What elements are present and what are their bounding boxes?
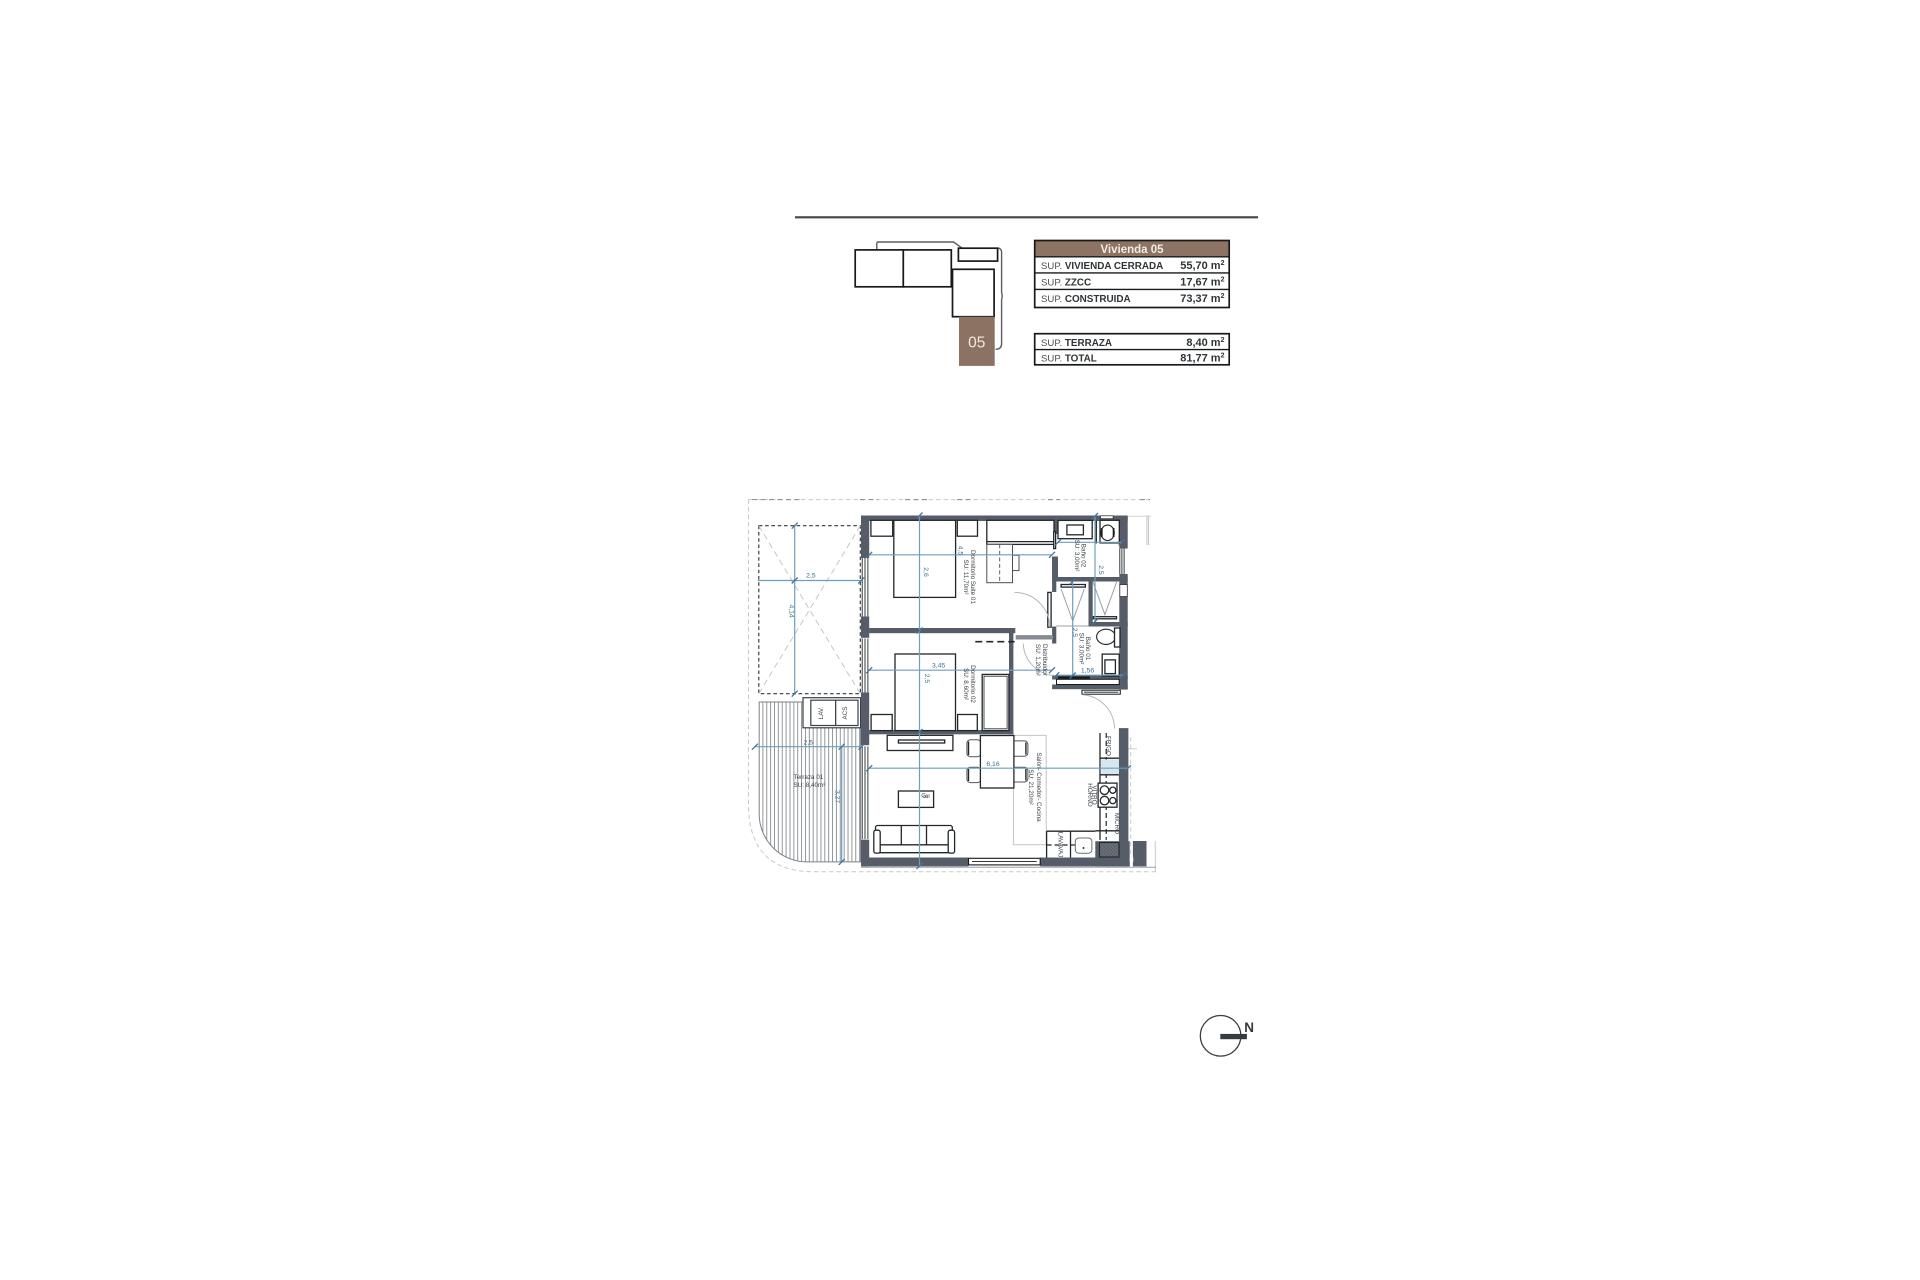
- svg-text:17,67 m2: 17,67 m2: [1180, 276, 1224, 288]
- svg-text:SU: 3,00m²: SU: 3,00m²: [1078, 633, 1085, 665]
- svg-text:81,77 m2: 81,77 m2: [1180, 352, 1224, 364]
- svg-text:SUP. ZZCC: SUP. ZZCC: [1041, 277, 1091, 288]
- svg-text:SUP. CONSTRUIDA: SUP. CONSTRUIDA: [1041, 294, 1131, 305]
- svg-text:SU: 8,40m²: SU: 8,40m²: [794, 782, 826, 789]
- svg-text:6,16: 6,16: [986, 761, 999, 768]
- svg-text:3,27: 3,27: [834, 790, 841, 803]
- svg-text:2,5: 2,5: [803, 740, 813, 747]
- svg-text:SU: 1,20m²: SU: 1,20m²: [1034, 644, 1041, 676]
- svg-text:3,45: 3,45: [932, 662, 945, 669]
- svg-text:LAVAVAJ: LAVAVAJ: [1057, 832, 1064, 858]
- svg-text:FRIGO: FRIGO: [1104, 736, 1111, 756]
- svg-text:SU: 11,70m²: SU: 11,70m²: [962, 560, 969, 595]
- svg-text:Gu: Gu: [921, 793, 930, 800]
- svg-text:8,40 m2: 8,40 m2: [1186, 337, 1224, 349]
- svg-text:2,5: 2,5: [923, 674, 930, 684]
- svg-text:Terraza 01: Terraza 01: [794, 774, 824, 781]
- svg-text:05: 05: [968, 335, 985, 352]
- svg-text:SUP. VIVIENDA CERRADA: SUP. VIVIENDA CERRADA: [1041, 261, 1163, 272]
- svg-text:Distribuidor: Distribuidor: [1041, 644, 1048, 676]
- svg-text:SU: 8,60m²: SU: 8,60m²: [962, 668, 969, 700]
- svg-text:LAV.: LAV.: [818, 706, 825, 719]
- svg-text:N: N: [1244, 1020, 1254, 1035]
- svg-text:55,70 m2: 55,70 m2: [1180, 260, 1224, 272]
- svg-text:4,14: 4,14: [787, 604, 794, 617]
- svg-text:2,5: 2,5: [1097, 565, 1104, 575]
- svg-text:MICRO: MICRO: [1113, 813, 1120, 834]
- svg-text:2,5: 2,5: [806, 573, 816, 580]
- svg-text:HORNO: HORNO: [1086, 783, 1093, 807]
- svg-text:73,37 m2: 73,37 m2: [1180, 293, 1224, 305]
- svg-text:Vivienda 05: Vivienda 05: [1100, 244, 1164, 256]
- svg-text:2,5: 2,5: [1071, 628, 1078, 638]
- svg-text:4,5: 4,5: [956, 546, 963, 556]
- svg-text:SU: 3,00m²: SU: 3,00m²: [1073, 540, 1080, 572]
- svg-text:SU: 21,20m²: SU: 21,20m²: [1027, 769, 1034, 804]
- svg-text:SUP. TOTAL: SUP. TOTAL: [1041, 353, 1097, 364]
- svg-text:Salón- Comedor- Cocina: Salón- Comedor- Cocina: [1035, 752, 1042, 822]
- svg-text:2,6: 2,6: [922, 567, 929, 577]
- svg-text:1,56: 1,56: [1081, 668, 1094, 675]
- svg-text:ACS: ACS: [842, 707, 849, 720]
- svg-text:Dormitorio Suite 01: Dormitorio Suite 01: [969, 550, 976, 604]
- svg-text:SUP. TERRAZA: SUP. TERRAZA: [1041, 338, 1112, 349]
